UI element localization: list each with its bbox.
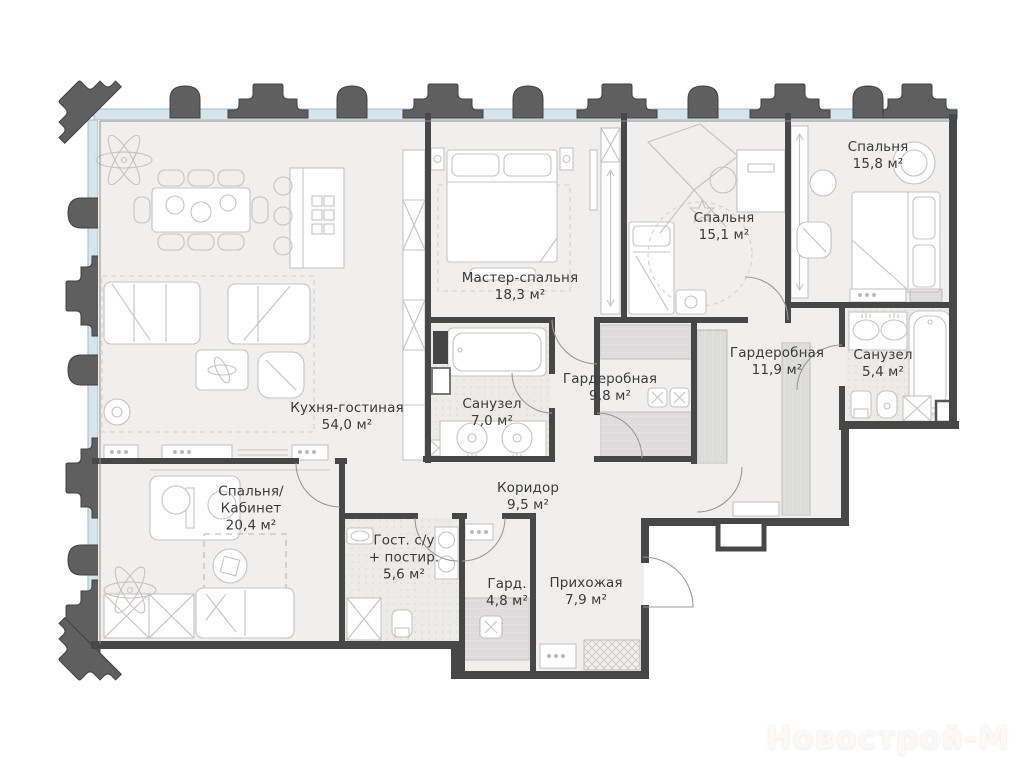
master-bed (447, 150, 557, 262)
room-name: Гост. с/у + постир. (369, 532, 440, 566)
toy-box (676, 290, 706, 314)
master-wardrobe (601, 128, 620, 314)
watermark: Новострой-М (766, 720, 1010, 756)
room-area: 7,0 м² (462, 413, 521, 430)
room-name: Спальня (694, 210, 755, 227)
room-name: Спальня (848, 139, 909, 156)
room-name: Гардеробная (563, 371, 657, 388)
bedroom3-bed (852, 192, 940, 292)
room-label-hallway: Прихожая 7,9 м² (549, 575, 622, 609)
room-area: 5,4 м² (853, 364, 912, 381)
coffee-table (196, 350, 248, 390)
room-label-master-bedroom: Мастер-спальня 18,3 м² (462, 270, 578, 304)
bedroom2-bed (629, 222, 674, 314)
room-label-bedroom-3: Спальня 15,8 м² (848, 139, 909, 173)
room-area: 5,6 м² (369, 567, 440, 584)
room-label-wardrobe-1: Гардеробная 9,8 м² (563, 371, 657, 405)
bedroom3-shelf (850, 289, 942, 302)
room-name: Коридор (497, 480, 559, 497)
office-sofa (196, 588, 294, 638)
room-label-bedroom-office: Спальня/ Кабинет 20,4 м² (218, 483, 283, 534)
office-wardrobe (104, 594, 194, 638)
pouf (810, 170, 836, 196)
room-label-guest-wc-laundry: Гост. с/у + постир. 5,6 м² (369, 532, 440, 583)
room-area: 11,9 м² (730, 362, 824, 379)
room-name: Санузел (462, 396, 521, 413)
room-name: Гард. (486, 576, 528, 593)
room-area: 9,8 м² (563, 388, 657, 405)
room-label-bathroom-1: Санузел 5,4 м² (853, 347, 912, 381)
room-area: 18,3 м² (462, 287, 578, 304)
room-area: 54,0 м² (290, 417, 403, 434)
room-name: Кухня-гостиная (290, 400, 403, 417)
room-area: 7,9 м² (549, 592, 622, 609)
room-label-closet: Гард. 4,8 м² (486, 576, 528, 610)
room-name: Спальня/ Кабинет (218, 483, 283, 517)
room-label-bathroom-2: Санузел 7,0 м² (462, 396, 521, 430)
room-name: Мастер-спальня (462, 270, 578, 287)
room-label-bedroom-2: Спальня 15,1 м² (694, 210, 755, 244)
room-area: 9,5 м² (497, 497, 559, 514)
room-name: Гардеробная (730, 345, 824, 362)
tv-console (104, 445, 328, 460)
hallway-furniture (540, 640, 640, 670)
armchair (258, 352, 304, 398)
room-label-corridor: Коридор 9,5 м² (497, 480, 559, 514)
room-area: 20,4 м² (218, 518, 283, 535)
room-name: Санузел (853, 347, 912, 364)
master-tv (590, 150, 597, 210)
room-label-wardrobe-2: Гардеробная 11,9 м² (730, 345, 824, 379)
bedroom3-wardrobe (791, 126, 808, 298)
room-area: 15,8 м² (848, 156, 909, 173)
room-area: 15,1 м² (694, 227, 755, 244)
floorplan-drawing (0, 0, 1024, 768)
small-armchair (797, 222, 831, 258)
room-name: Прихожая (549, 575, 622, 592)
side-table (104, 399, 130, 425)
floor-plan-page: Кухня-гостиная 54,0 м² Мастер-спальня 18… (0, 0, 1024, 768)
room-label-kitchen-living: Кухня-гостиная 54,0 м² (290, 400, 403, 434)
room-area: 4,8 м² (486, 593, 528, 610)
